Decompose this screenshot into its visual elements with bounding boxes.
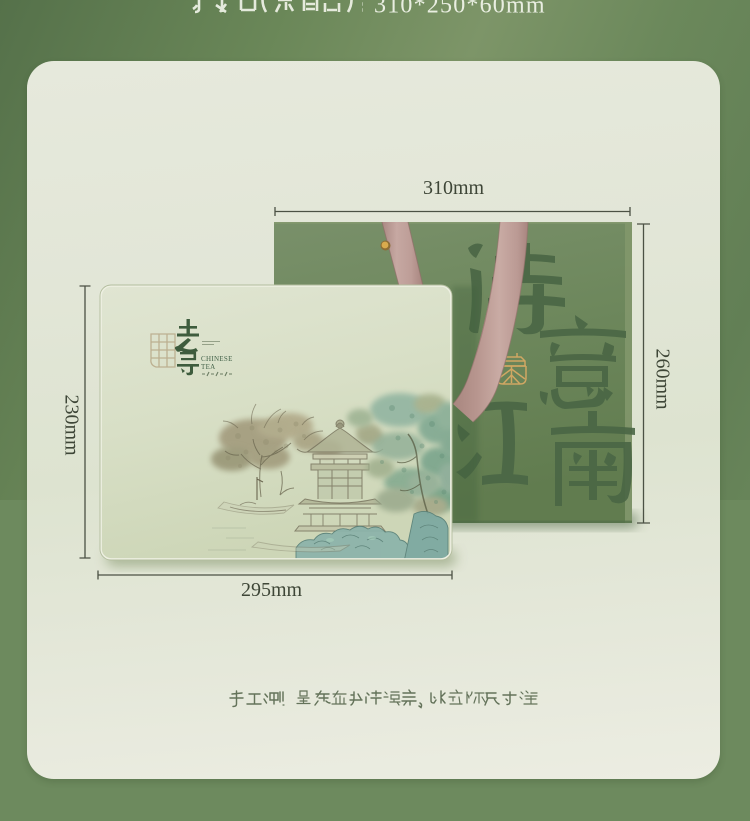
svg-text:TEA: TEA (201, 363, 216, 371)
svg-text:CHINESE: CHINESE (201, 355, 233, 363)
